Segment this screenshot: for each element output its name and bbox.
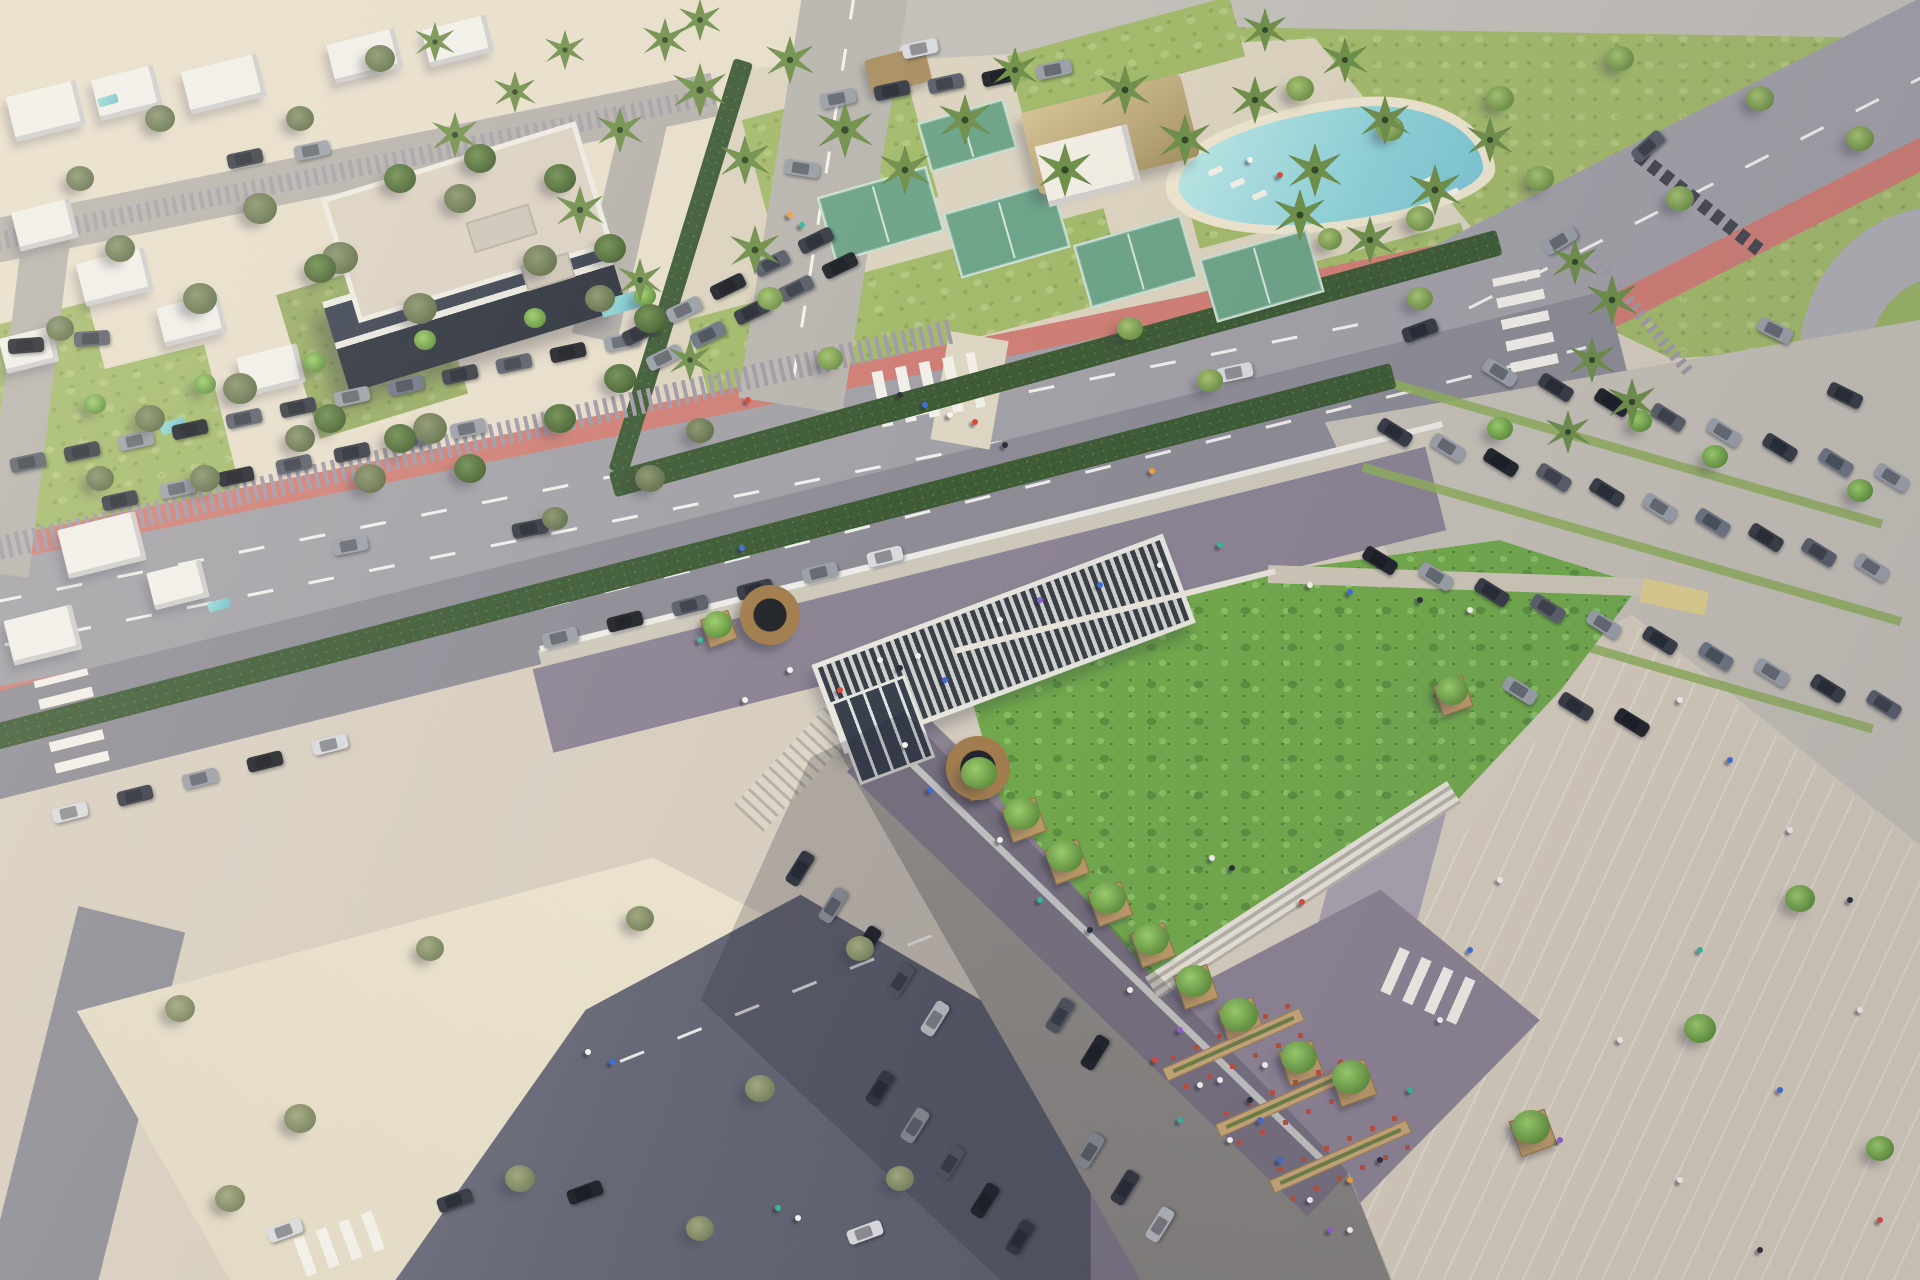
tree [1526, 166, 1554, 191]
tree [384, 164, 416, 193]
person [799, 222, 805, 228]
person [1847, 897, 1853, 903]
person [1177, 1117, 1183, 1123]
restaurant-chair [1194, 1045, 1199, 1050]
person [1197, 1082, 1203, 1088]
tree [1847, 479, 1873, 502]
tree [1746, 86, 1774, 111]
person [1327, 1227, 1333, 1233]
person [739, 545, 745, 551]
planter-tree [961, 757, 997, 789]
planter-tree [1047, 840, 1083, 872]
person [1257, 1117, 1263, 1123]
person [1157, 562, 1163, 568]
person [897, 392, 903, 398]
person [1467, 947, 1473, 953]
person [1037, 597, 1043, 603]
tree [66, 166, 94, 191]
tree [1866, 1136, 1894, 1161]
tree [314, 404, 346, 433]
tree [544, 404, 576, 433]
person [1177, 1027, 1183, 1033]
tree [505, 1165, 535, 1192]
person [897, 665, 903, 671]
person [1467, 607, 1473, 613]
restaurant-chair [1370, 1126, 1375, 1131]
restaurant-chair [1329, 1099, 1334, 1104]
person [1217, 1077, 1223, 1083]
tree [365, 45, 395, 72]
tree [223, 373, 257, 404]
planter-tree [1176, 965, 1212, 997]
tree [1406, 206, 1434, 231]
restaurant-chair [1293, 1080, 1298, 1085]
tree [524, 308, 546, 328]
person [1217, 542, 1223, 548]
tree [46, 316, 74, 341]
person [942, 677, 948, 683]
person [922, 402, 928, 408]
person [972, 419, 978, 425]
tree [444, 184, 476, 213]
tree [384, 424, 416, 453]
restaurant-chair [1314, 1186, 1319, 1191]
planter-tree [1004, 798, 1040, 830]
tree [523, 245, 557, 276]
person [1347, 1177, 1353, 1183]
person [1299, 899, 1305, 905]
person [1037, 897, 1043, 903]
person [697, 637, 703, 643]
planter-tree [1220, 998, 1258, 1032]
tree [165, 995, 195, 1022]
person [1757, 1247, 1763, 1253]
planter-tree [1090, 882, 1126, 914]
person [1002, 442, 1008, 448]
restaurant-chair [1324, 1146, 1329, 1151]
person [1277, 172, 1283, 178]
tree [464, 144, 496, 173]
tree [454, 454, 486, 483]
tree [1487, 417, 1513, 440]
restaurant-chair [1237, 1140, 1242, 1145]
restaurant-chair [1316, 1070, 1321, 1075]
tree [215, 1185, 245, 1212]
tree [84, 394, 106, 414]
restaurant-chair [1301, 1157, 1306, 1162]
tree [135, 405, 165, 432]
person [1127, 987, 1133, 993]
tree [414, 330, 436, 350]
tree [1197, 369, 1223, 392]
tree [817, 347, 843, 370]
person [1277, 1157, 1283, 1163]
person [1307, 1197, 1313, 1203]
person [1087, 927, 1093, 933]
tree [194, 374, 216, 394]
tree [190, 465, 220, 492]
tree [757, 287, 783, 310]
person [775, 1205, 781, 1211]
person [1407, 1087, 1413, 1093]
tree [1486, 86, 1514, 111]
person [1727, 757, 1733, 763]
tree [1318, 228, 1342, 250]
person [1557, 1137, 1563, 1143]
tree [403, 293, 437, 324]
planter-tree [1332, 1060, 1370, 1094]
person [1152, 1057, 1158, 1063]
tree [886, 1166, 914, 1191]
aerial-render [0, 0, 1920, 1280]
planter-tree [703, 611, 732, 638]
tree [544, 164, 576, 193]
tree [626, 906, 654, 931]
tree [284, 1104, 316, 1133]
person [1347, 1227, 1353, 1233]
person [745, 397, 751, 403]
person [742, 697, 748, 703]
person [1247, 1097, 1253, 1103]
person [795, 1215, 801, 1221]
person [1677, 697, 1683, 703]
restaurant-chair [1291, 1196, 1296, 1201]
planter-tree [1281, 1041, 1317, 1073]
restaurant-chair [1392, 1116, 1397, 1121]
person [1097, 582, 1103, 588]
tree [416, 936, 444, 961]
tree [585, 285, 615, 312]
planter-tree [1512, 1110, 1550, 1144]
restaurant-chair [1383, 1155, 1388, 1160]
tree [604, 364, 636, 393]
person [927, 787, 933, 793]
tree [1286, 76, 1314, 101]
tree [304, 254, 336, 283]
person [585, 1049, 591, 1055]
person [787, 212, 793, 218]
tree [686, 418, 714, 443]
person [1417, 597, 1423, 603]
restaurant-chair [1171, 1055, 1176, 1060]
tree [745, 1075, 775, 1102]
person [1777, 1087, 1783, 1093]
tree [183, 283, 217, 314]
tree [542, 507, 568, 530]
person [1497, 877, 1503, 883]
planter-tree [1133, 923, 1169, 955]
tree [105, 235, 135, 262]
restaurant-chair [1298, 1033, 1303, 1038]
tree [354, 464, 386, 493]
tree [285, 425, 315, 452]
person [1247, 157, 1253, 163]
restaurant-chair [1405, 1145, 1410, 1150]
tree [86, 466, 114, 491]
tree [1785, 885, 1815, 912]
planter-tree [1436, 676, 1468, 705]
tree [1666, 186, 1694, 211]
restaurant-chair [1217, 1034, 1222, 1039]
tree [1117, 317, 1143, 340]
person [1437, 1017, 1443, 1023]
person [1857, 1007, 1863, 1013]
person [997, 617, 1003, 623]
restaurant-chair [1263, 1014, 1268, 1019]
restaurant-chair [1253, 1053, 1258, 1058]
tree [1407, 287, 1433, 310]
tree [635, 465, 665, 492]
person [1229, 865, 1235, 871]
restaurant-chair [1285, 1004, 1290, 1009]
restaurant-chair [1260, 1130, 1265, 1135]
person [1787, 827, 1793, 833]
person [1877, 1217, 1883, 1223]
tree [1846, 126, 1874, 151]
restaurant-chair [1283, 1120, 1288, 1125]
restaurant-chair [1270, 1090, 1275, 1095]
person [837, 687, 843, 693]
person [609, 1059, 615, 1065]
person [787, 667, 793, 673]
tree [686, 1216, 714, 1241]
person [1262, 1062, 1268, 1068]
person [997, 837, 1003, 843]
restaurant-chair [1207, 1074, 1212, 1079]
person [1677, 1177, 1683, 1183]
person [947, 412, 953, 418]
car [8, 337, 45, 354]
person [1377, 1157, 1383, 1163]
person [1347, 589, 1353, 595]
person [1307, 582, 1313, 588]
tree [243, 193, 277, 224]
restaurant-chair [1337, 1176, 1342, 1181]
person [915, 653, 921, 659]
tree [846, 936, 874, 961]
tree [304, 352, 326, 372]
restaurant-chair [1360, 1165, 1365, 1170]
restaurant-chair [1184, 1084, 1189, 1089]
tree [1702, 445, 1728, 468]
restaurant-chair [1306, 1109, 1311, 1114]
tree [145, 105, 175, 132]
restaurant-chair [1278, 1167, 1283, 1172]
person [1149, 468, 1155, 474]
person [877, 657, 883, 663]
round-kiosk [740, 585, 800, 645]
tree [1606, 46, 1634, 71]
person [902, 742, 908, 748]
restaurant-chair [1347, 1136, 1352, 1141]
car [74, 330, 111, 347]
tree [634, 304, 666, 333]
person [1209, 855, 1215, 861]
person [1227, 1137, 1233, 1143]
tree [413, 413, 447, 444]
person [1697, 947, 1703, 953]
tree [286, 106, 314, 131]
tree [594, 234, 626, 263]
tree [1684, 1014, 1716, 1043]
restaurant-chair [1224, 1111, 1229, 1116]
restaurant-chair [1230, 1064, 1235, 1069]
person [1617, 1037, 1623, 1043]
restaurant-chair [1276, 1043, 1281, 1048]
